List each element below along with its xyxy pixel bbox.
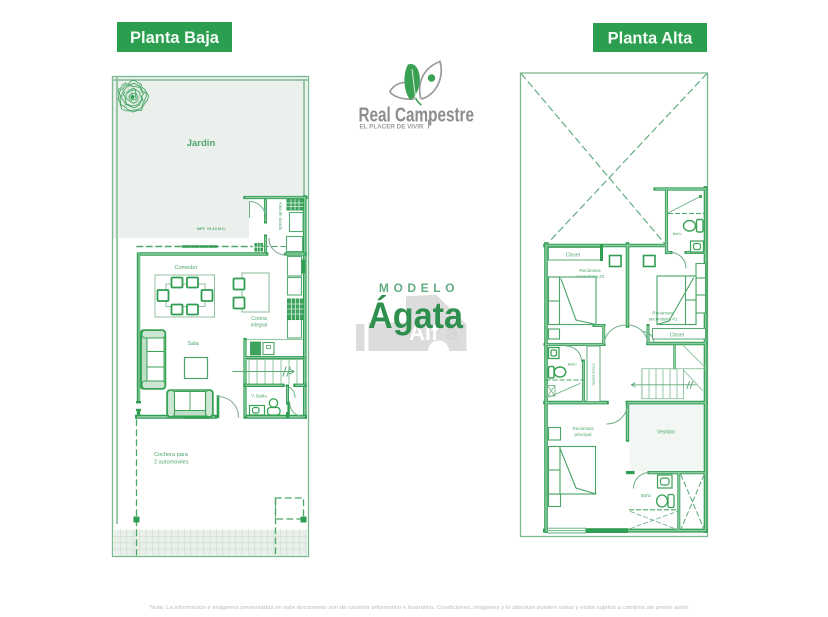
svg-text:Cocina: Cocina [251,316,267,322]
svg-text:Real Campestre: Real Campestre [359,104,475,127]
svg-text:Comedor: Comedor [174,265,197,271]
svg-text:2 automóviles: 2 automóviles [154,460,189,466]
svg-text:Cochera para: Cochera para [154,452,189,458]
svg-text:Baño: Baño [641,493,652,498]
svg-text:Área de lavado: Área de lavado [278,202,283,231]
svg-text:Recámara: Recámara [572,426,594,431]
svg-text:Planta Alta: Planta Alta [608,30,693,48]
svg-text:Closet pasillo: Closet pasillo [592,363,596,386]
svg-text:½ Baño: ½ Baño [251,393,267,399]
svg-text:Jardin: Jardin [187,138,216,149]
svg-text:NPT. +0.10 N.C.: NPT. +0.10 N.C. [197,226,226,231]
svg-text:principal: principal [574,432,591,437]
svg-text:EL PLACER DE VIVIR: EL PLACER DE VIVIR [360,125,425,131]
svg-text:Ágata: Ágata [368,295,463,336]
svg-text:secundaria #1: secundaria #1 [649,316,678,321]
svg-text:Baño: Baño [673,232,682,236]
svg-text:Planta Baja: Planta Baja [130,29,220,47]
svg-text:Sala: Sala [187,341,199,347]
svg-text:Closet: Closet [566,253,581,259]
svg-text:Recámara: Recámara [652,311,674,316]
svg-text:MODELO: MODELO [379,281,459,295]
svg-text:Recámara: Recámara [579,268,601,273]
svg-text:Vestidor: Vestidor [657,430,675,436]
svg-text:integral: integral [251,323,267,329]
svg-text:Nota: La información e imágene: Nota: La información e imágenes presenta… [150,605,690,611]
svg-text:Baño: Baño [568,363,577,367]
svg-text:Closet: Closet [670,333,685,339]
